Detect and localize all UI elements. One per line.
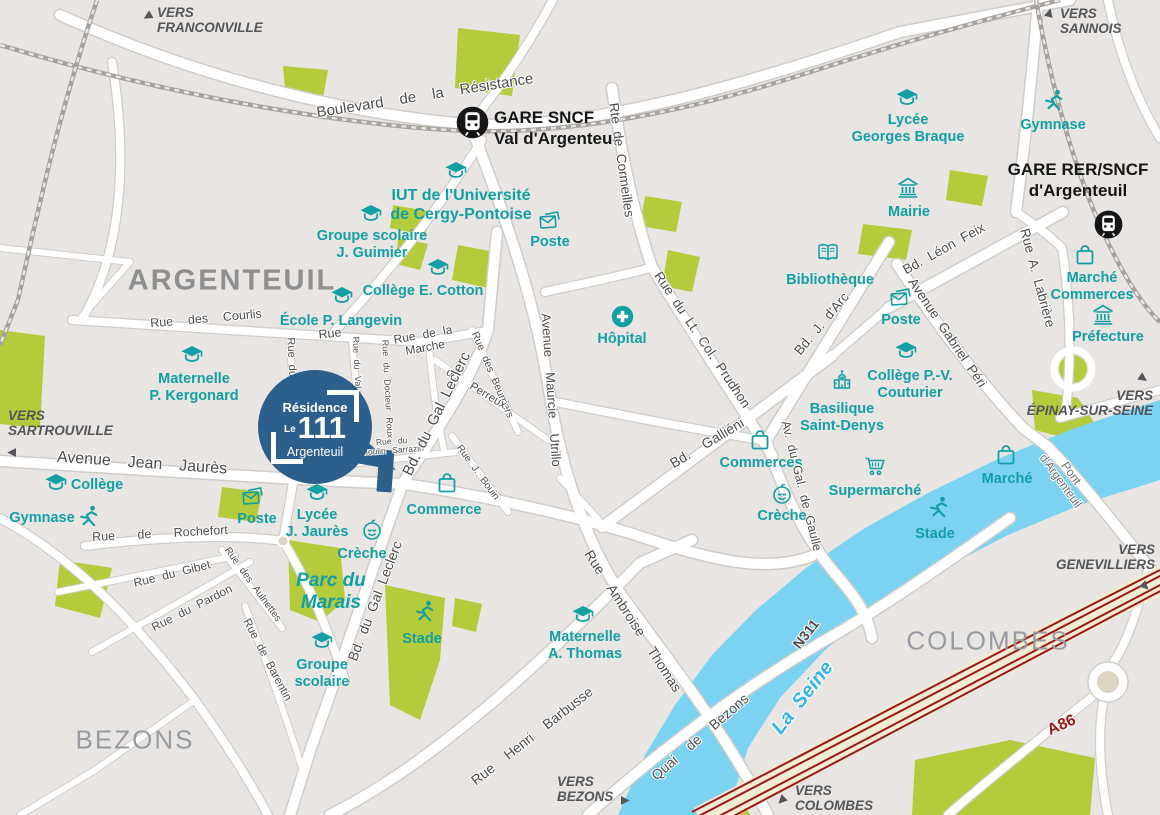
poi-hopital: Hôpital [597, 331, 646, 348]
gare-sncf-val-argenteuil: GARE SNCF Val d'Argenteuil [494, 108, 622, 149]
poi-poste-ouest: Poste [237, 511, 277, 528]
post-envelope-icon [538, 208, 562, 232]
graduation-cap-icon [895, 86, 919, 110]
street-rue-docteur-roux: Rue du Docteur Roux [380, 340, 395, 439]
poi-bibliotheque: Bibliothèque [786, 272, 874, 289]
street-rte-cormeilles: Rte de Cormeilles [606, 102, 636, 218]
poi-poste-est: Poste [881, 312, 921, 329]
street-bd-leon-feix: Bd. Léon Feix [901, 221, 988, 278]
poi-lycee-jaures: LycéeJ. Jaurès [286, 507, 349, 541]
marker-corner-bracket-icon [271, 432, 303, 464]
poi-stade-ouest: Stade [402, 631, 442, 648]
poi-college-cotton: Collège E. Cotton [363, 283, 484, 300]
street-n311: N311 [790, 617, 822, 652]
graduation-cap-icon [180, 343, 204, 367]
post-envelope-icon [241, 484, 265, 508]
poi-groupe-scolaire-sud: Groupescolaire [295, 657, 350, 691]
vers-colombes: VERS COLOMBES [795, 783, 873, 813]
church-icon [830, 367, 854, 391]
graduation-cap-icon [330, 284, 354, 308]
street-av-maurice-utrillo: Avenue Maurcie Utrillo [539, 313, 563, 467]
vers-colombes-arrow-icon: ▲ [770, 789, 793, 812]
vers-epinay-sur-seine: VERS ÉPINAY-SUR-SEINE [1027, 388, 1153, 418]
shopping-bag-icon [748, 428, 772, 452]
label-a86: A86 [1045, 712, 1079, 739]
poi-iut-cergy: IUT de l'Universitéde Cergy-Pontoise [390, 187, 531, 225]
graduation-cap-icon [894, 339, 918, 363]
gare-rer-sncf-argenteuil: GARE RER/SNCF d'Argenteuil [1008, 160, 1149, 201]
poi-creche-ouest: Crèche [337, 546, 386, 563]
poi-groupe-scolaire-guimier: Groupe scolaireJ. Guimier [317, 228, 427, 262]
graduation-cap-icon [571, 603, 595, 627]
poi-creche-est: Crèche [757, 508, 806, 525]
residence-le-111-marker: Résidence Le111 Argenteuil [258, 370, 372, 484]
area-bezons: BEZONS [76, 725, 195, 756]
street-rue-j-bouin: Rue J. Bouin [454, 444, 501, 503]
shopping-bag-icon [1073, 243, 1097, 267]
shopping-bag-icon [994, 443, 1018, 467]
marker-corner-bracket-icon [327, 390, 359, 422]
street-pont-argenteuil: Pont d'Argenteuil [1037, 444, 1094, 510]
street-rue-des-courlis: Rue des Courlis [150, 308, 263, 331]
vers-epinay-sur-seine-arrow-icon: ▲ [1132, 368, 1154, 390]
graduation-cap-icon [310, 629, 334, 653]
hospital-cross-icon [609, 303, 636, 330]
poi-stade-est: Stade [915, 526, 955, 543]
vers-sannois-arrow-icon: ▲ [1040, 2, 1059, 22]
vers-sartrouville-arrow-icon: ▲ [3, 445, 20, 460]
street-rue-du-pardon: Rue du Pardon [150, 582, 235, 634]
runner-icon [926, 496, 950, 520]
vers-genevilliers-arrow-icon: ▲ [1134, 575, 1157, 598]
street-bd-j-darc: Bd. J. d'Arc [792, 290, 852, 358]
poi-commerce: Commerce [407, 502, 482, 519]
street-rue: Rue [318, 326, 342, 341]
poi-prefecture: Préfecture [1072, 329, 1144, 346]
poi-maternelle-thomas: MaternelleA. Thomas [548, 629, 622, 663]
argenteuil-location-map: ARGENTEUILBEZONSCOLOMBESVERS FRANCONVILL… [0, 0, 1160, 815]
street-av-jean-jaures: Avenue Jean Jaurès [56, 450, 227, 479]
poi-gymnase-ouest: Gymnase [9, 510, 74, 527]
street-quai-de-bezons: Quai de Bezons [649, 691, 752, 783]
vers-franconville-arrow-icon: ▲ [136, 6, 158, 27]
runner-icon [76, 505, 100, 529]
street-rue-ambroise-thomas: Rue Ambroise Thomas [582, 547, 685, 694]
government-building-icon [896, 176, 920, 200]
shopping-cart-icon [863, 454, 887, 478]
vers-franconville: VERS FRANCONVILLE [157, 5, 263, 35]
runner-icon [412, 600, 436, 624]
poi-lycee-georges-braque: LycéeGeorges Braque [852, 112, 965, 146]
street-rue-lt-col-prudhon: Rue du Lt. Col. Prudhon [651, 269, 753, 410]
poi-maternelle-kergonard: MaternelleP. Kergonard [149, 371, 238, 405]
vers-genevilliers: VERS GENEVILLIERS [1056, 542, 1155, 572]
poi-poste-centre: Poste [530, 234, 570, 251]
poi-parc-du-marais: Parc duMarais [296, 570, 366, 615]
vers-bezons: VERS BEZONS [557, 774, 613, 804]
creche-baby-icon [770, 482, 794, 506]
graduation-cap-icon [305, 481, 329, 505]
label-la-seine: La Seine [768, 658, 838, 739]
poi-marche-est: Marché [982, 471, 1033, 488]
poi-mairie: Mairie [888, 204, 930, 221]
runner-icon [1041, 89, 1065, 113]
library-book-icon [816, 241, 840, 265]
poi-supermarche: Supermarché [829, 483, 922, 500]
vers-sannois: VERS SANNOIS [1060, 6, 1122, 36]
shopping-bag-icon [435, 471, 459, 495]
vers-bezons-arrow-icon: ▲ [617, 793, 634, 808]
street-rue-de-barentin: Rue de Barentin [240, 617, 293, 703]
train-station-icon [1094, 210, 1123, 244]
graduation-cap-icon [44, 471, 68, 495]
government-building-icon [1091, 303, 1115, 327]
street-rue-du-gibet: Rue du Gibet [132, 558, 211, 589]
vers-sartrouville: VERS SARTROUVILLE [8, 408, 113, 438]
graduation-cap-icon [426, 256, 450, 280]
poi-college-couturier: Collège P.-V.Couturier [867, 368, 952, 402]
poi-basilique-saint-denys: BasiliqueSaint-Denys [800, 401, 884, 435]
poi-college-ouest: Collège [71, 477, 123, 494]
poi-marche-commerces: MarchéCommerces [1050, 270, 1133, 304]
graduation-cap-icon [444, 159, 468, 183]
street-rue-de-rochefort: Rue de Rochefort [92, 524, 228, 544]
graduation-cap-icon [359, 202, 383, 226]
area-colombes: COLOMBES [906, 626, 1069, 657]
creche-baby-icon [360, 518, 384, 542]
train-station-icon [456, 106, 489, 144]
street-rue-henri-barbusse: Rue Henri Barbusse [468, 684, 595, 788]
street-rue-des-beurriers: Rue des Beurriers [469, 330, 515, 420]
poi-gymnase-nord: Gymnase [1020, 117, 1085, 134]
area-argenteuil: ARGENTEUIL [128, 265, 337, 298]
map-labels-layer: ARGENTEUILBEZONSCOLOMBESVERS FRANCONVILL… [0, 0, 1160, 815]
